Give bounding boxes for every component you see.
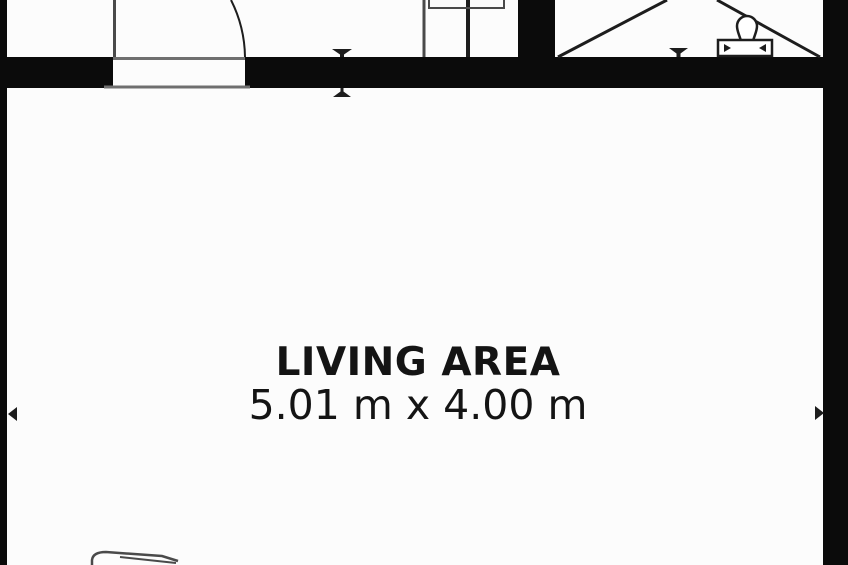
sofa: [92, 552, 178, 565]
room-dimensions: 5.01 m x 4.00 m: [0, 384, 836, 427]
floor-plan: LIVING AREA 5.01 m x 4.00 m: [0, 0, 848, 565]
marker-triangle-below-icon: [333, 88, 351, 97]
marker-triangle-above-icon: [332, 49, 352, 57]
diagonal-line-left: [558, 0, 667, 57]
top-wall-left-segment: [0, 57, 113, 88]
toilet: [718, 16, 772, 56]
room-name: LIVING AREA: [0, 341, 836, 384]
walls: [0, 0, 848, 565]
marker-triangle-right-room-icon: [669, 48, 688, 57]
floor-plan-drawing: [0, 0, 848, 565]
entry-door: [104, 0, 250, 87]
sloped-area-lines: [558, 0, 820, 57]
wall-column: [518, 0, 555, 88]
toilet-bowl-icon: [737, 16, 757, 41]
room-label-block: LIVING AREA 5.01 m x 4.00 m: [0, 341, 836, 427]
door-swing-arc-icon: [231, 0, 245, 57]
upper-room-partitions: [424, 0, 504, 57]
